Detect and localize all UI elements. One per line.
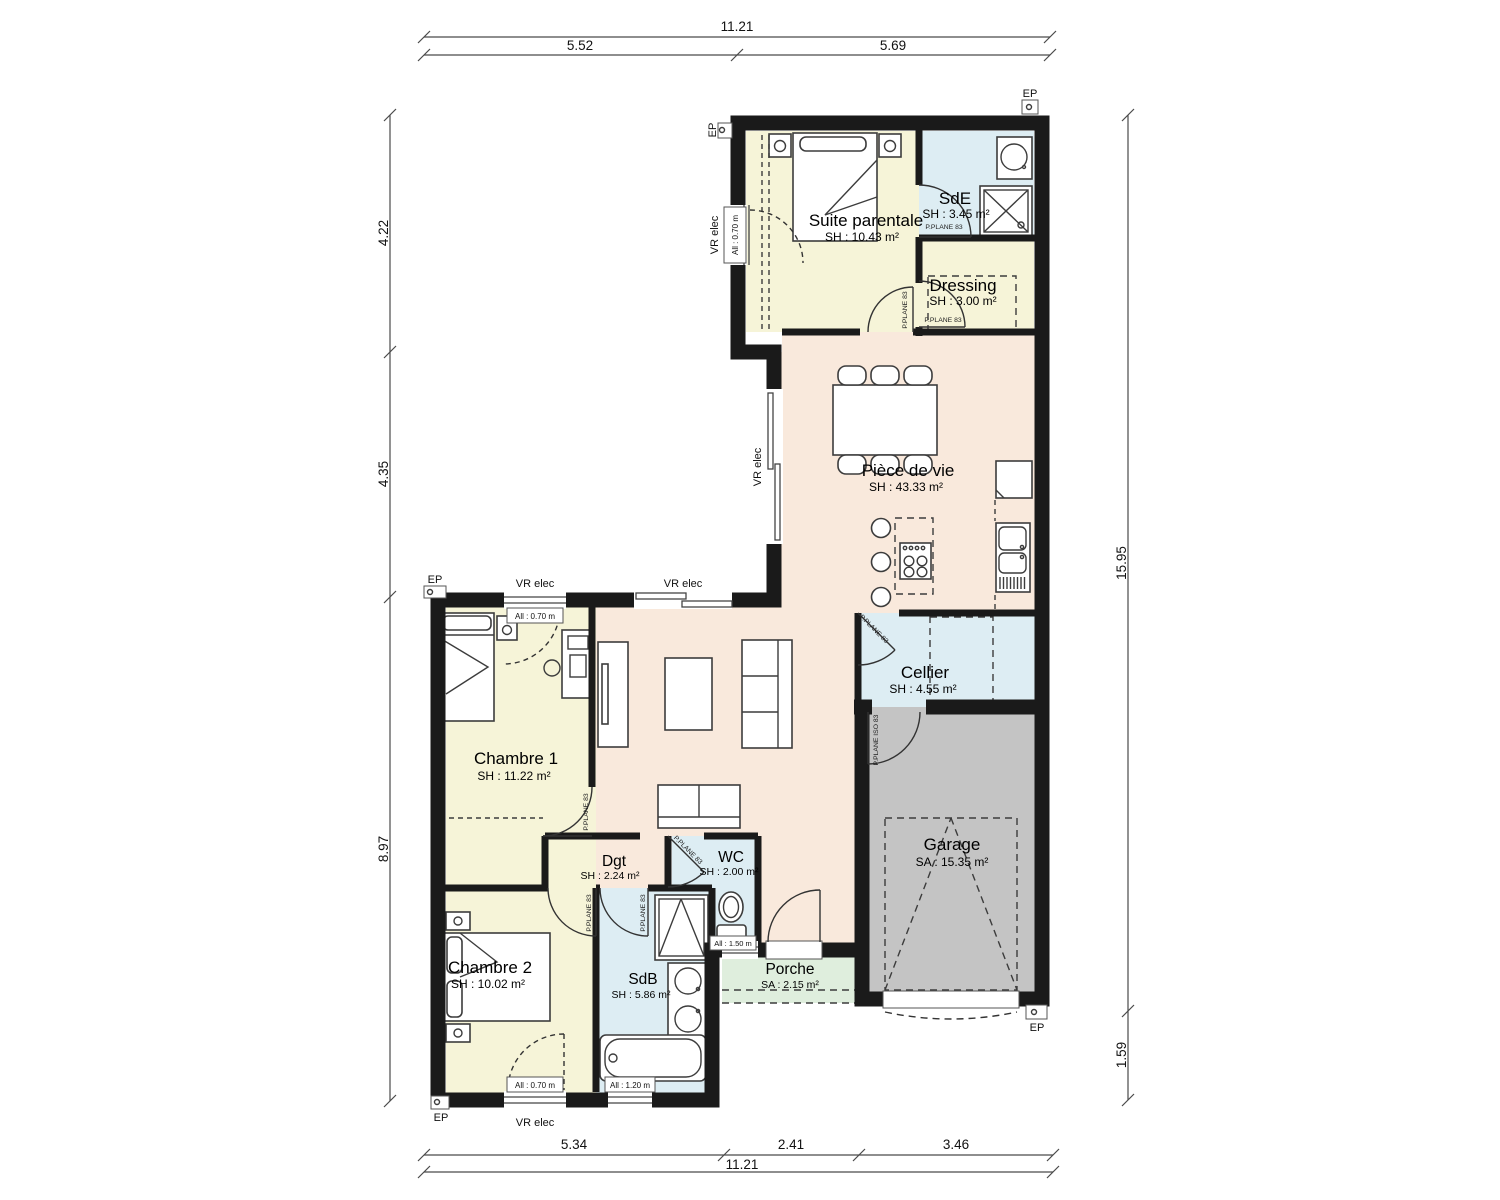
coffee-table bbox=[665, 658, 712, 730]
dim-top-total: 11.21 bbox=[721, 19, 754, 34]
window-allege-label: All : 0.70 m bbox=[731, 215, 740, 255]
door-label: P.PLANE 83 bbox=[583, 793, 590, 831]
chair bbox=[871, 366, 899, 385]
window bbox=[608, 1091, 652, 1109]
nightstand bbox=[769, 134, 791, 157]
room-area: SH : 43.33 m² bbox=[869, 480, 943, 494]
room-area: SH : 3.00 m² bbox=[929, 294, 996, 308]
ep-label: EP bbox=[434, 1112, 449, 1124]
window bbox=[634, 591, 732, 609]
room-name: Porche bbox=[765, 961, 814, 978]
tv-screen bbox=[602, 664, 608, 724]
room-name: Suite parentale bbox=[809, 211, 923, 230]
room-area: SH : 10.02 m² bbox=[451, 977, 525, 991]
dim-bottom-a: 5.34 bbox=[561, 1137, 588, 1152]
dim-top-a: 5.52 bbox=[567, 38, 593, 53]
window-type-label: VR elec bbox=[664, 578, 703, 590]
garage-door-panel bbox=[883, 991, 1019, 1008]
sofa bbox=[742, 640, 792, 748]
dim-left-c: 8.97 bbox=[376, 836, 391, 862]
chair bbox=[838, 366, 866, 385]
door-label: P.PLANE 83 bbox=[902, 291, 909, 329]
door-label: P.PLANE ISO 83 bbox=[873, 714, 880, 765]
bar-stool bbox=[872, 553, 891, 572]
window-allege-label: All : 1.50 m bbox=[714, 939, 752, 948]
window-allege-label: All : 0.70 m bbox=[515, 1081, 555, 1090]
ep-marker: EP bbox=[424, 574, 446, 598]
window-allege-label: All : 1.20 m bbox=[610, 1081, 650, 1090]
room-area: SH : 5.86 m² bbox=[612, 989, 671, 1001]
window bbox=[504, 1091, 566, 1109]
entry-threshold bbox=[766, 941, 822, 959]
shower bbox=[655, 895, 708, 960]
room-name: Dressing bbox=[929, 276, 996, 295]
ep-label: EP bbox=[1023, 88, 1038, 100]
room-area: SH : 4.55 m² bbox=[889, 682, 956, 696]
window-type-label: VR elec bbox=[752, 447, 764, 486]
nightstand bbox=[446, 1024, 470, 1042]
ep-marker: EP bbox=[431, 1096, 449, 1124]
window-allege-label: All : 0.70 m bbox=[515, 612, 555, 621]
room-name: Cellier bbox=[901, 663, 950, 682]
room-area: SA : 2.15 m² bbox=[761, 979, 819, 991]
kitchen-tall-unit bbox=[996, 461, 1032, 498]
room-area: SH : 3.45 m² bbox=[922, 207, 989, 221]
garage-door-swing-dashed bbox=[885, 1012, 1017, 1019]
door-label: P.PLANE 83 bbox=[924, 317, 962, 324]
room-name: Garage bbox=[924, 835, 981, 854]
bathtub bbox=[600, 1035, 706, 1081]
bar-stool bbox=[872, 588, 891, 607]
ep-label: EP bbox=[1030, 1022, 1045, 1034]
dim-right-a: 15.95 bbox=[1114, 546, 1129, 580]
nightstand bbox=[879, 134, 901, 157]
room-name: WC bbox=[718, 849, 744, 866]
door-label: P.PLANE 83 bbox=[586, 894, 593, 932]
ep-marker: EP bbox=[707, 123, 732, 138]
dim-left-b: 4.35 bbox=[376, 461, 391, 487]
door-label: P.PLANE 83 bbox=[640, 894, 647, 932]
pillow bbox=[443, 616, 491, 630]
room-area: SH : 10.43 m² bbox=[825, 230, 899, 244]
window-type-label: VR elec bbox=[516, 578, 555, 590]
room-name: Chambre 2 bbox=[448, 958, 532, 977]
floor-plan-drawing: All : 0.70 m VR elec VR elec All : 0.70 … bbox=[0, 0, 1500, 1200]
room-name: SdE bbox=[939, 189, 971, 208]
ep-label: EP bbox=[428, 574, 443, 586]
floor-plan-page: All : 0.70 m VR elec VR elec All : 0.70 … bbox=[0, 0, 1500, 1200]
room-area: SH : 2.24 m² bbox=[581, 870, 640, 882]
garage-door bbox=[883, 991, 1019, 1019]
dim-right-b: 1.59 bbox=[1114, 1042, 1129, 1068]
room-name: Pièce de vie bbox=[862, 461, 955, 480]
window-type-label: VR elec bbox=[516, 1117, 555, 1129]
nightstand bbox=[446, 912, 470, 930]
room-area: SH : 2.00 m² bbox=[700, 866, 759, 878]
ep-marker: EP bbox=[1022, 88, 1038, 114]
ep-marker: EP bbox=[1026, 1005, 1047, 1034]
dim-bottom-total: 11.21 bbox=[726, 1157, 759, 1172]
dining-table bbox=[833, 385, 937, 455]
dim-bottom-c: 3.46 bbox=[943, 1137, 969, 1152]
door-label: P.PLANE 83 bbox=[925, 224, 963, 231]
room-name: Dgt bbox=[602, 853, 627, 870]
ep-label: EP bbox=[707, 123, 719, 138]
window bbox=[504, 591, 566, 609]
room-area: SA : 15.35 m² bbox=[916, 855, 989, 869]
room-area: SH : 11.22 m² bbox=[477, 769, 550, 783]
bar-stool bbox=[872, 519, 891, 538]
dim-top-b: 5.69 bbox=[880, 38, 906, 53]
chair bbox=[904, 366, 932, 385]
room-name: Chambre 1 bbox=[474, 749, 558, 768]
room-name: SdB bbox=[628, 971, 657, 988]
window-type-label: VR elec bbox=[709, 215, 721, 254]
dim-left-a: 4.22 bbox=[376, 220, 391, 246]
pillow bbox=[800, 137, 866, 151]
dim-bottom-b: 2.41 bbox=[778, 1137, 804, 1152]
vanity-counter bbox=[668, 963, 708, 1037]
